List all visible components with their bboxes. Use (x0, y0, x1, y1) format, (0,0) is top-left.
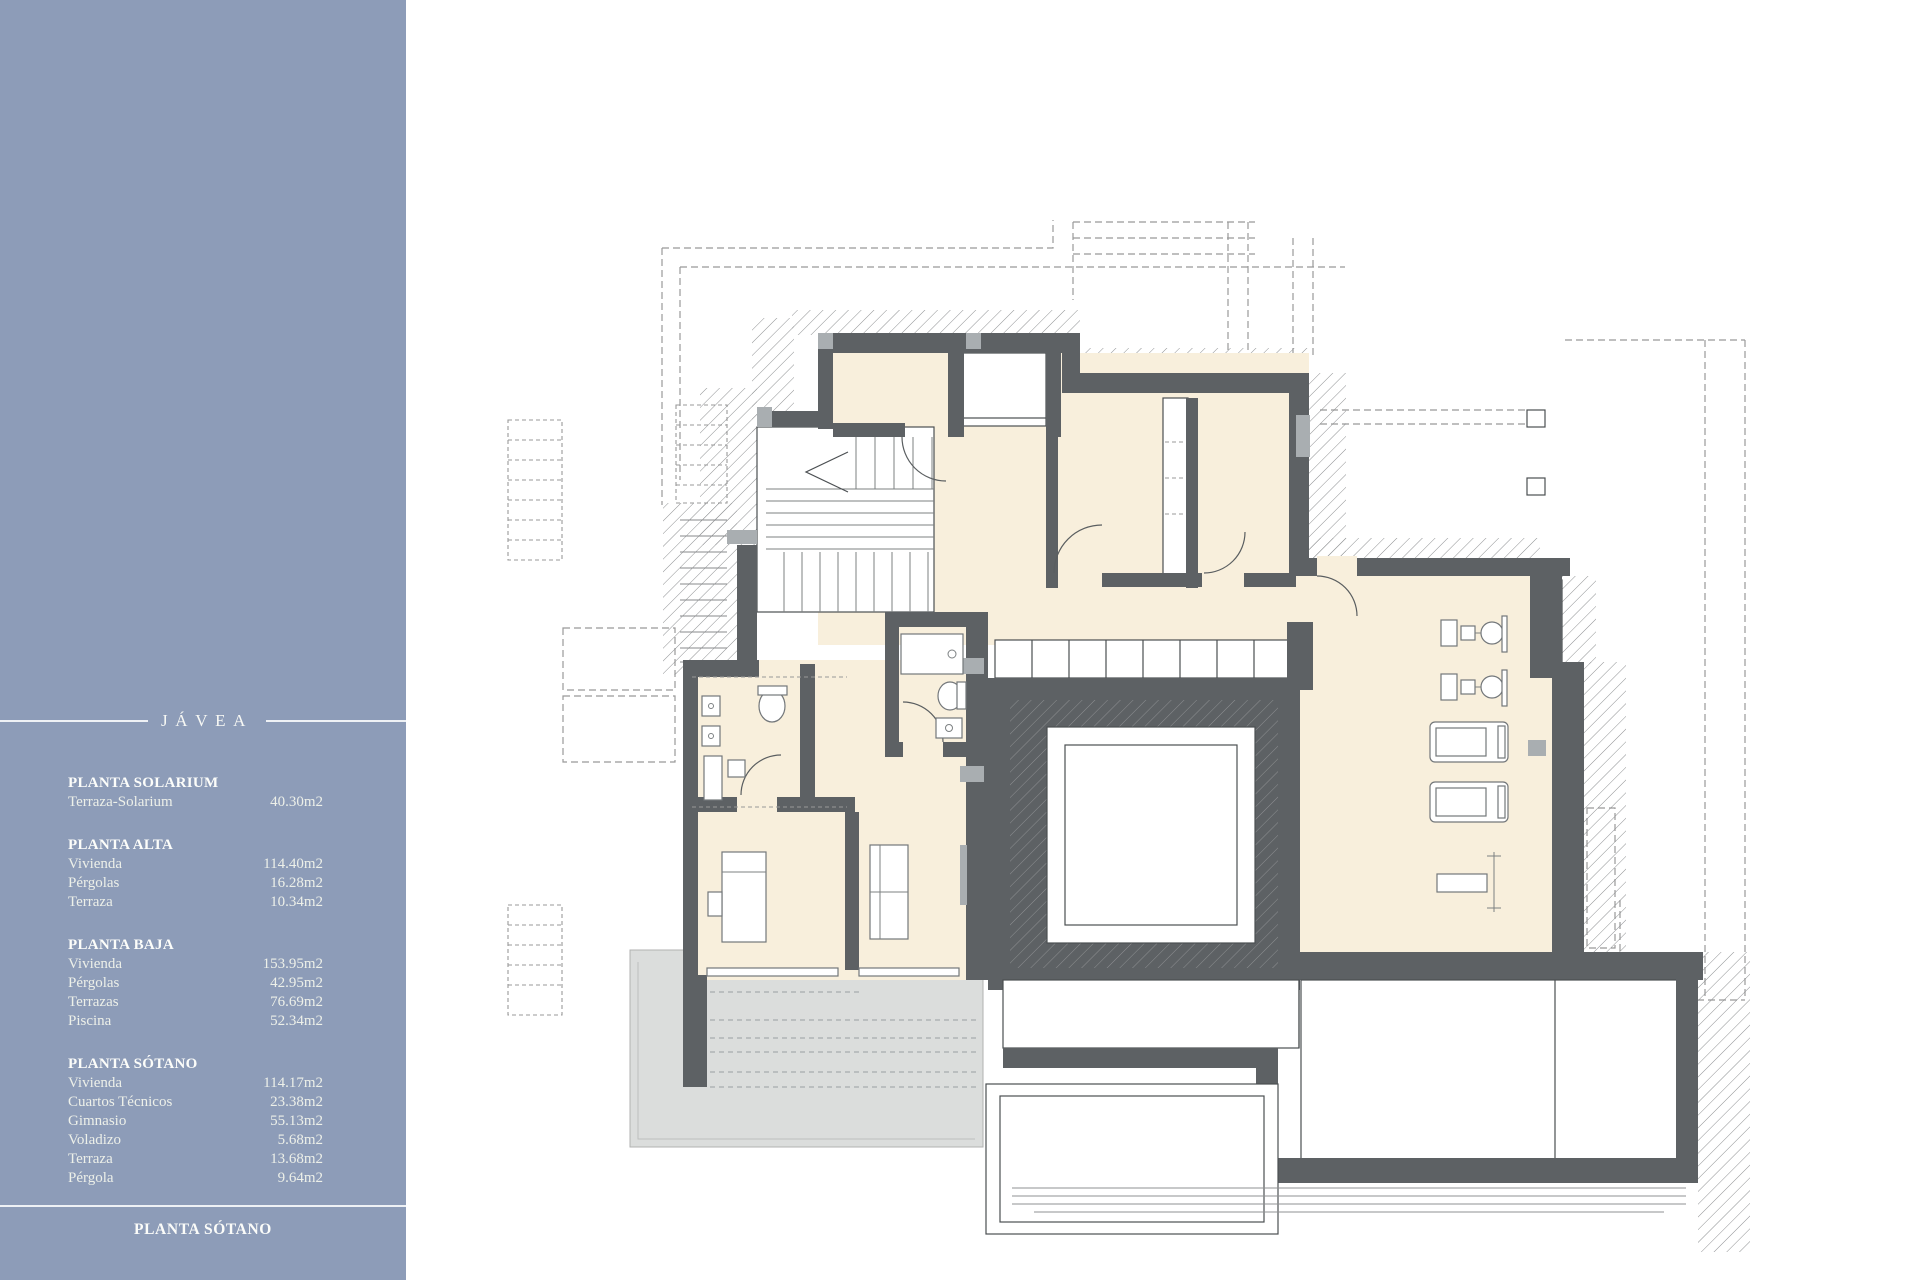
treadmill-icon (1430, 722, 1508, 762)
bed-icon (722, 852, 766, 942)
footer-rule (0, 1205, 406, 1207)
courtyard-lightwell (988, 678, 1300, 990)
area-label: Cuartos Técnicos (68, 1093, 172, 1112)
storage-room (961, 353, 1046, 423)
area-row: Pérgolas 42.95m2 (68, 974, 323, 993)
area-label: Pérgolas (68, 974, 119, 993)
area-row: Pérgola 9.64m2 (68, 1169, 323, 1188)
area-label: Pérgolas (68, 874, 119, 893)
area-section-heading: PLANTA BAJA (68, 936, 323, 955)
area-row: Vivienda 153.95m2 (68, 955, 323, 974)
toilet-icon (938, 682, 966, 710)
treadmill-icon (1430, 782, 1508, 822)
area-section-sotano: PLANTA SÓTANO Vivienda 114.17m2 Cuartos … (68, 1055, 323, 1188)
area-label: Terrazas (68, 993, 119, 1012)
area-row: Piscina 52.34m2 (68, 1012, 323, 1031)
area-row: Terraza-Solarium 40.30m2 (68, 793, 323, 812)
area-row: Pérgolas 16.28m2 (68, 874, 323, 893)
title-rule-right (266, 720, 406, 722)
area-row: Terraza 10.34m2 (68, 893, 323, 912)
sink-icon (702, 726, 720, 746)
window-sill (859, 968, 959, 976)
window-slab (960, 845, 967, 905)
area-label: Terraza-Solarium (68, 793, 173, 812)
area-section-heading: PLANTA SOLARIUM (68, 774, 323, 793)
area-value: 114.17m2 (263, 1074, 323, 1093)
area-row: Cuartos Técnicos 23.38m2 (68, 1093, 323, 1112)
pergola-posts (1527, 410, 1545, 495)
area-value: 52.34m2 (270, 1012, 323, 1031)
nightstand-icon (708, 892, 722, 916)
window-slab (1296, 415, 1310, 457)
window-sill (707, 968, 838, 976)
area-label: Voladizo (68, 1131, 121, 1150)
title-rule-left (0, 720, 148, 722)
area-section-baja: PLANTA BAJA Vivienda 153.95m2 Pérgolas 4… (68, 936, 323, 1031)
area-label: Terraza (68, 1150, 113, 1169)
project-title: JÁVEA (161, 711, 253, 731)
project-title-block: JÁVEA (0, 706, 406, 736)
area-value: 76.69m2 (270, 993, 323, 1012)
area-value: 42.95m2 (270, 974, 323, 993)
area-section-alta: PLANTA ALTA Vivienda 114.40m2 Pérgolas 1… (68, 836, 323, 912)
area-label: Terraza (68, 893, 113, 912)
glass-wall-band (995, 640, 1290, 678)
area-label: Vivienda (68, 855, 122, 874)
sink-icon (936, 718, 962, 738)
area-schedule: PLANTA SOLARIUM Terraza-Solarium 40.30m2… (68, 774, 323, 1212)
area-value: 13.68m2 (270, 1150, 323, 1169)
area-section-solarium: PLANTA SOLARIUM Terraza-Solarium 40.30m2 (68, 774, 323, 812)
area-label: Vivienda (68, 955, 122, 974)
area-value: 114.40m2 (263, 855, 323, 874)
area-value: 40.30m2 (270, 793, 323, 812)
area-row: Gimnasio 55.13m2 (68, 1112, 323, 1131)
shower-icon (901, 634, 963, 674)
area-row: Vivienda 114.40m2 (68, 855, 323, 874)
area-row: Terrazas 76.69m2 (68, 993, 323, 1012)
area-value: 9.64m2 (278, 1169, 323, 1188)
area-section-heading: PLANTA ALTA (68, 836, 323, 855)
area-value: 153.95m2 (263, 955, 323, 974)
area-label: Gimnasio (68, 1112, 126, 1131)
area-row: Voladizo 5.68m2 (68, 1131, 323, 1150)
sidebar: JÁVEA PLANTA SOLARIUM Terraza-Solarium 4… (0, 0, 406, 1280)
area-value: 16.28m2 (270, 874, 323, 893)
area-label: Vivienda (68, 1074, 122, 1093)
sofa-icon (870, 845, 908, 939)
area-value: 55.13m2 (270, 1112, 323, 1131)
area-row: Vivienda 114.17m2 (68, 1074, 323, 1093)
area-section-heading: PLANTA SÓTANO (68, 1055, 323, 1074)
area-value: 5.68m2 (278, 1131, 323, 1150)
floor-label: PLANTA SÓTANO (0, 1221, 406, 1239)
closet-shelves (1163, 398, 1188, 575)
area-label: Pérgola (68, 1169, 114, 1188)
area-row: Terraza 13.68m2 (68, 1150, 323, 1169)
sink-icon (702, 696, 720, 716)
pool-terraces (986, 978, 1698, 1234)
area-value: 23.38m2 (270, 1093, 323, 1112)
area-label: Piscina (68, 1012, 111, 1031)
sidebar-footer: PLANTA SÓTANO (0, 1205, 406, 1239)
area-value: 10.34m2 (270, 893, 323, 912)
